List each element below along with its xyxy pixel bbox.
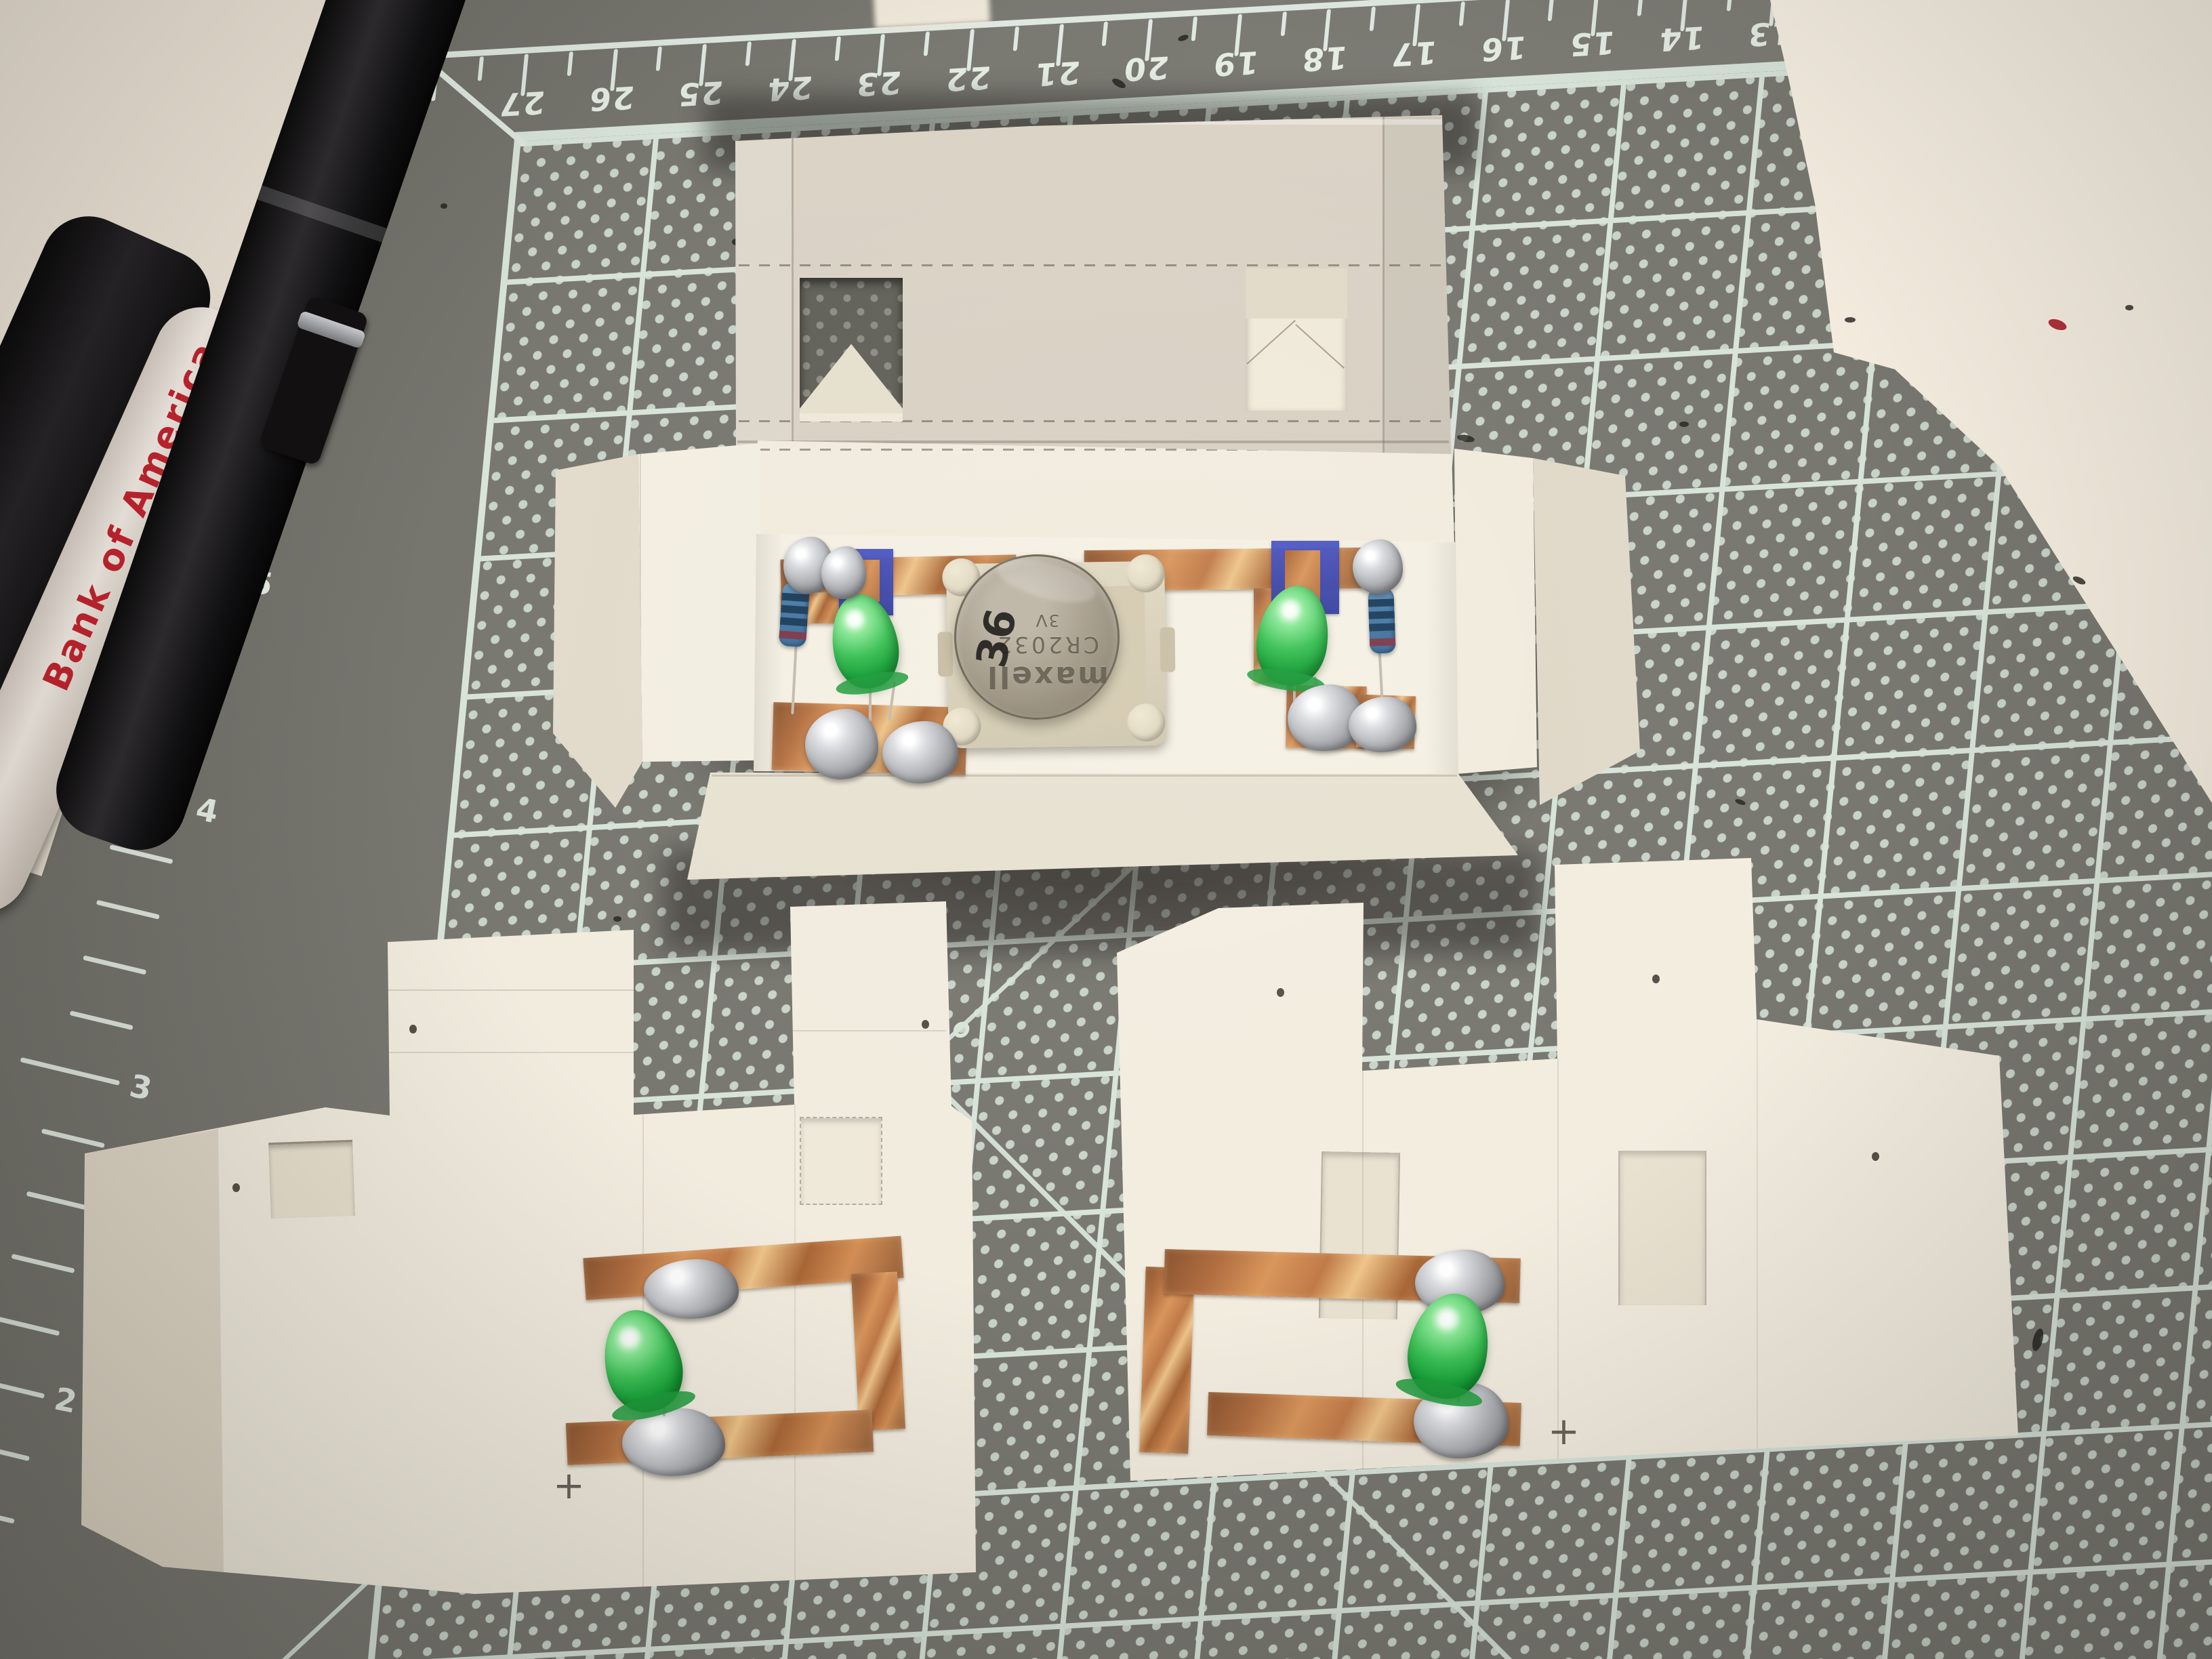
mat-debris-speck [1679, 422, 1689, 427]
coin-cell-battery: maxell CR2032 3V 36 [954, 554, 1120, 720]
polarity-mark: + [553, 1464, 585, 1508]
mat-debris-speck [1456, 434, 1475, 443]
battery-voltage: 3V [1035, 611, 1060, 631]
window-pencil-triangle [1295, 324, 1345, 369]
mat-debris-speck [1177, 34, 1189, 43]
mat-debris-speck [2030, 1328, 2045, 1352]
led-glint [615, 1322, 644, 1353]
arm-crease [388, 1052, 634, 1053]
arm-crease [388, 989, 634, 991]
pencil-dot [1652, 975, 1660, 983]
sheet-speck [2072, 575, 2087, 586]
solder-joint [805, 709, 878, 779]
base-right-shade [1426, 542, 1458, 778]
pencil-dot [922, 1020, 929, 1029]
mat-debris-speck [441, 203, 447, 209]
led-glint [843, 605, 867, 633]
pencil-dot [1872, 1152, 1879, 1161]
holder-boss [1126, 554, 1165, 593]
pencil-dot [232, 1183, 240, 1192]
body-cut-tab [800, 1117, 882, 1205]
resistor-band [1369, 623, 1395, 631]
solder-joint [821, 546, 866, 599]
fold-crease [794, 1105, 796, 1579]
window-pencil-triangle [1246, 320, 1296, 365]
sheet-red-speck [2047, 317, 2068, 333]
sheet-speck [1845, 317, 1856, 323]
panel-window-right [1246, 268, 1347, 411]
resistor-band [781, 605, 808, 615]
resistor-band [780, 617, 808, 627]
arm-crease [790, 1030, 946, 1031]
resistor-band [1370, 638, 1395, 646]
window-paper-sliver [800, 413, 903, 422]
polarity-mark: + [1548, 1410, 1580, 1454]
window-fold-triangle [800, 278, 903, 422]
body-slot-tab [1618, 1151, 1706, 1305]
mat-debris-speck [1111, 77, 1127, 90]
solder-joint [882, 721, 958, 783]
resistor-band [1369, 611, 1395, 619]
holder-boss [1127, 703, 1166, 742]
resistor-band [779, 631, 807, 640]
pencil-dot [1277, 988, 1284, 997]
solder-joint [1349, 697, 1416, 752]
resistor-right [1368, 588, 1395, 653]
resistor-band [1368, 598, 1394, 607]
holder-clip [938, 632, 954, 676]
holder-clip [1160, 628, 1175, 672]
sheet-speck [2125, 305, 2133, 310]
solder-joint [644, 1259, 739, 1319]
resistor-band [781, 593, 809, 602]
window-flap-shade [1246, 268, 1347, 319]
led-bottom-left [593, 1302, 691, 1420]
mat-debris-speck [613, 916, 621, 922]
led-glint [1433, 1303, 1462, 1334]
panel-left-tab-shade [735, 139, 792, 447]
led-glint [1278, 596, 1303, 625]
fold-crease [1757, 1019, 1758, 1480]
pen-barrel-band [257, 186, 387, 243]
solder-joint [1353, 539, 1403, 594]
wing-slot-tab [268, 1140, 355, 1218]
panel-fold-line [792, 133, 794, 446]
panel-pencil-line [739, 264, 1443, 266]
photo-scene: 272625242322212019181716151413 45° 76543… [0, 0, 2212, 1659]
pencil-dot [409, 1025, 417, 1033]
mat-debris-speck [1734, 798, 1746, 806]
copper-trace [1139, 1267, 1195, 1454]
copper-trace [851, 1271, 905, 1431]
panel-window-left [800, 278, 903, 422]
